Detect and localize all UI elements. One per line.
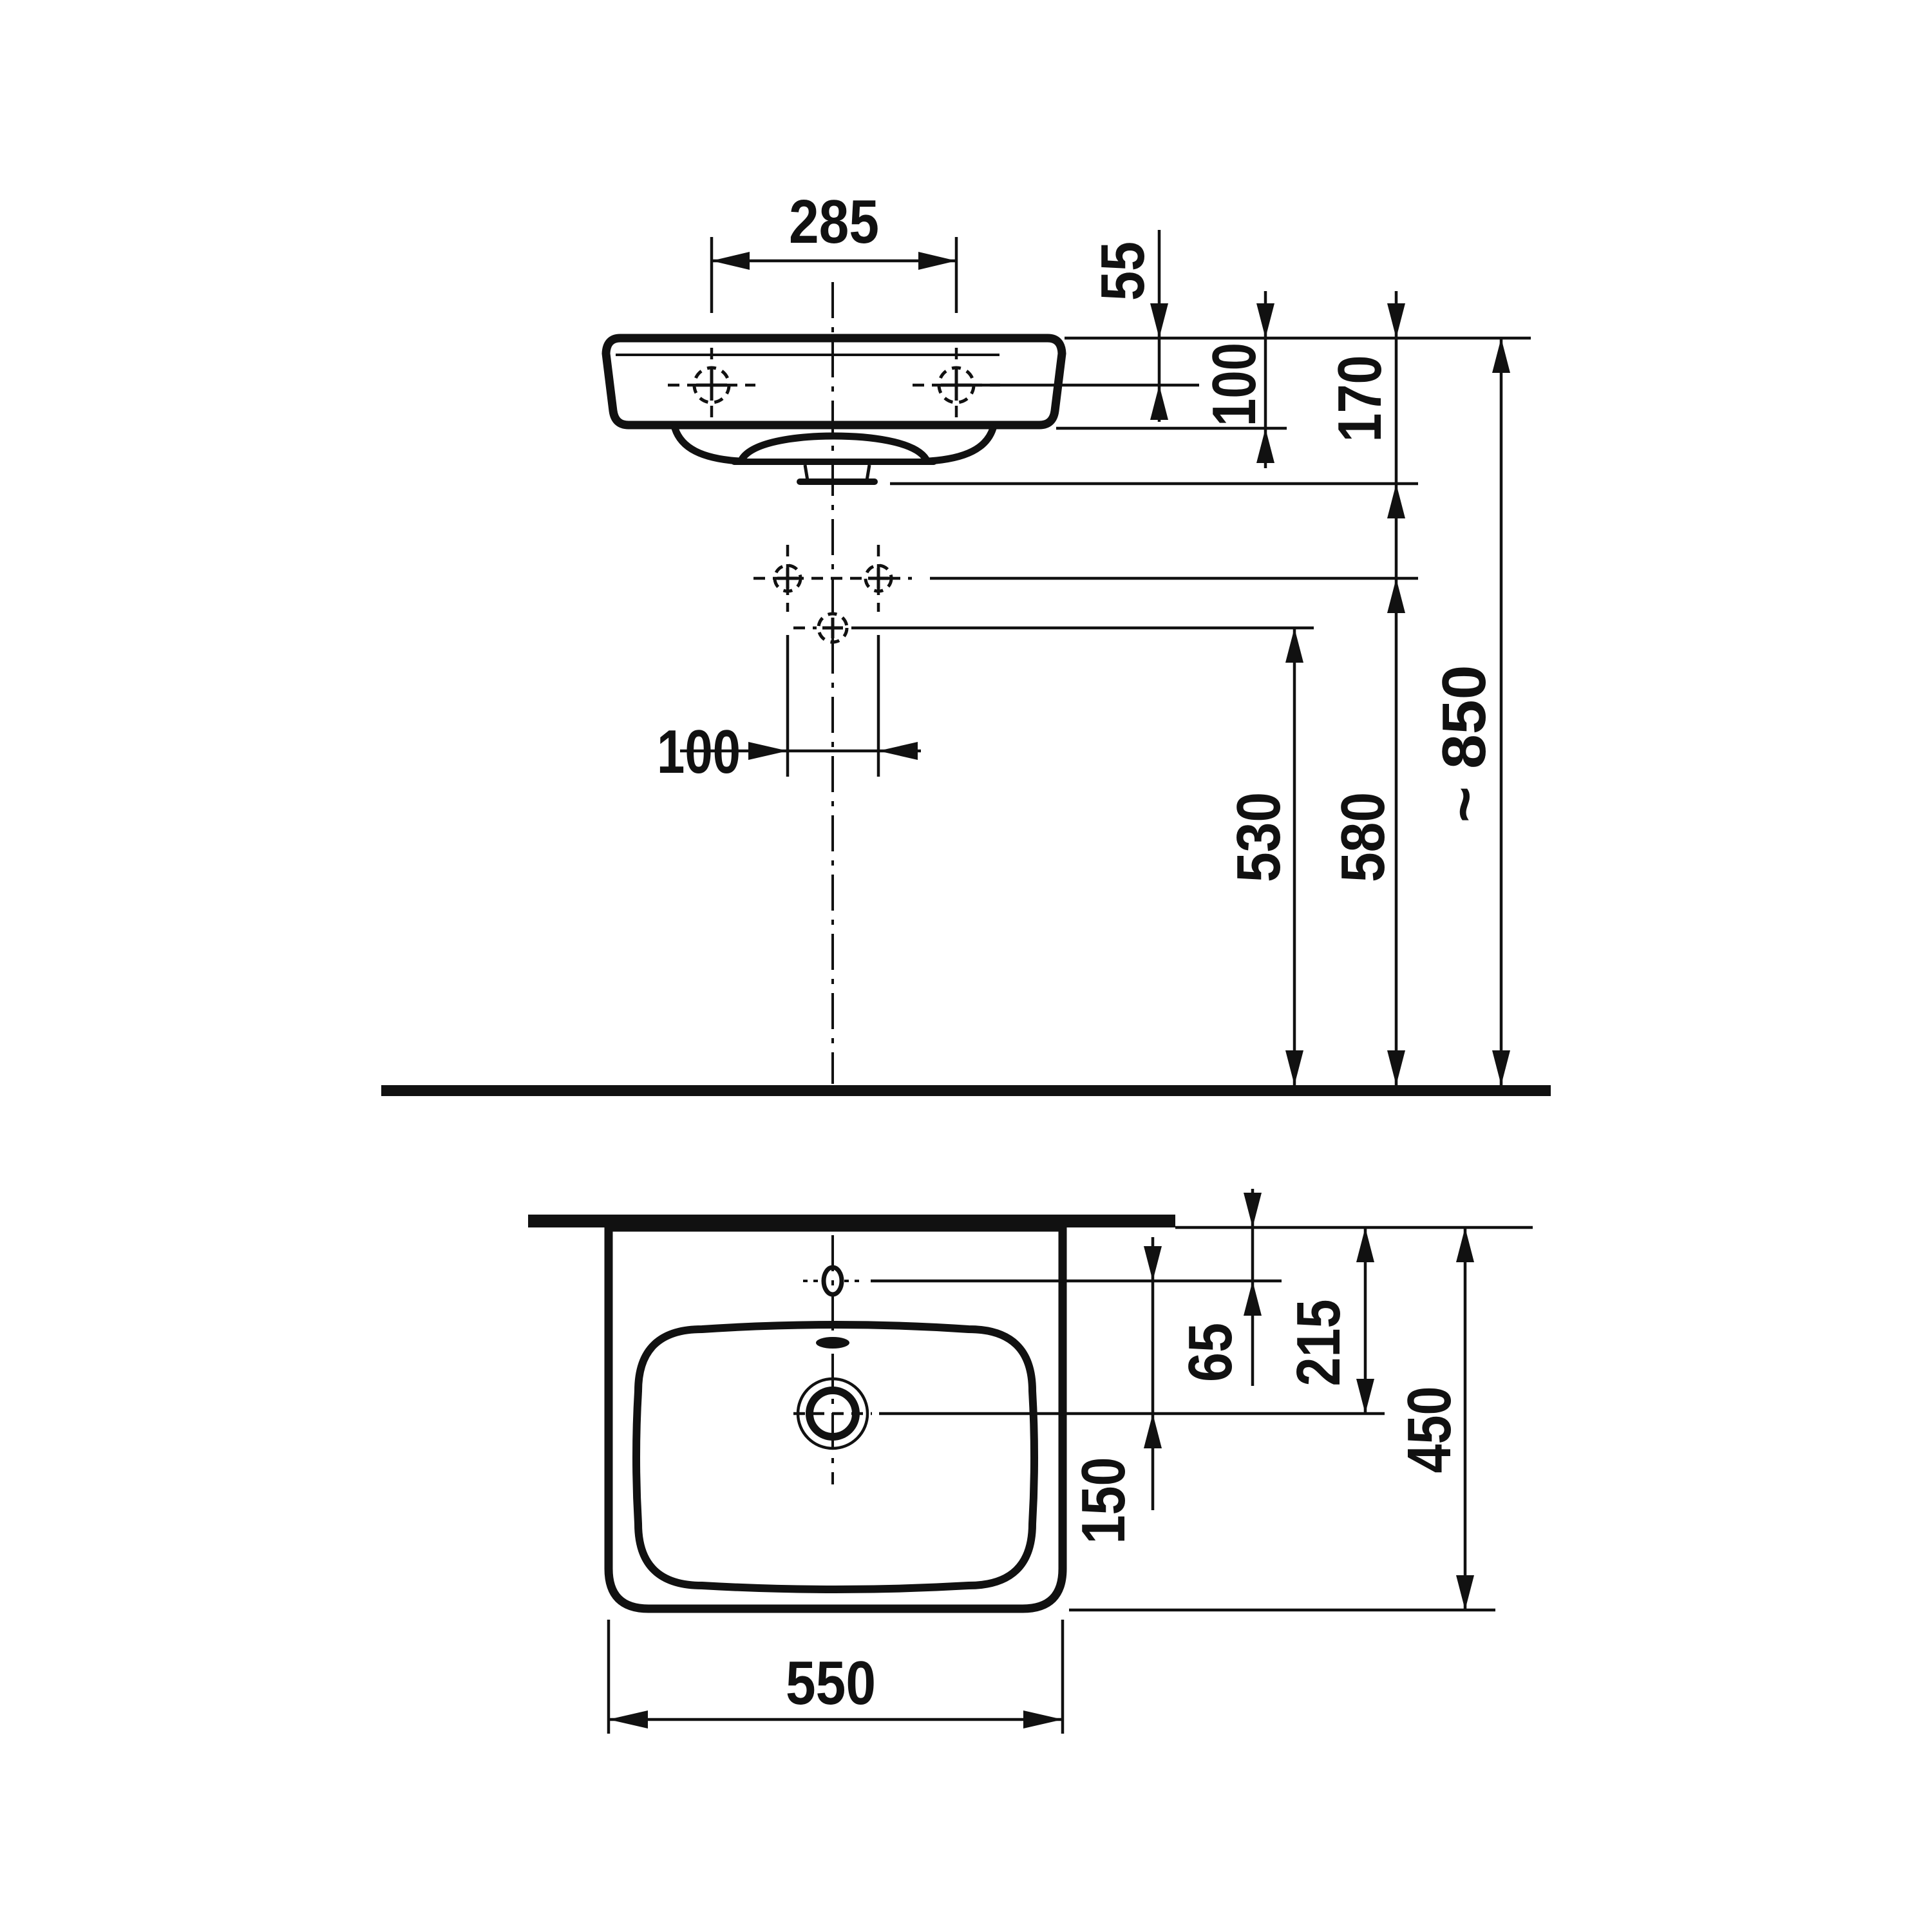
dim-label-530: 530: [1224, 792, 1293, 882]
arrowhead: [1256, 428, 1274, 463]
dimension-rim-to-underside-and-supply-height: 170 580: [1325, 291, 1405, 1085]
arrowhead: [1244, 1281, 1262, 1316]
underside-left-curve: [675, 428, 739, 461]
dimension-rim-to-bottom: 100: [1200, 291, 1274, 468]
dimension-depth: 450: [1395, 1227, 1474, 1610]
arrowhead: [1150, 303, 1168, 338]
arrowhead: [1150, 385, 1168, 420]
dim-label-55: 55: [1088, 241, 1157, 301]
dim-label-100-supply: 100: [657, 717, 741, 786]
dim-label-150: 150: [1069, 1457, 1138, 1544]
arrowhead: [1244, 1193, 1262, 1227]
arrowhead: [1387, 303, 1405, 338]
dim-label-170: 170: [1325, 355, 1394, 442]
drain-tailpipe: [805, 465, 869, 480]
dim-label-65: 65: [1176, 1323, 1245, 1382]
dim-label-580: 580: [1329, 792, 1397, 882]
arrowhead: [609, 1710, 648, 1728]
dimension-rim-to-holes: 55: [1088, 230, 1168, 422]
arrowhead: [1456, 1227, 1474, 1262]
supply-holes: [753, 545, 1418, 612]
dimension-floor-to-rim: ~ 850: [1430, 338, 1510, 1085]
arrowhead: [1256, 303, 1274, 338]
dimension-tap-to-drain: 150: [1069, 1237, 1162, 1544]
arrowhead: [1285, 628, 1303, 663]
arrowhead: [1144, 1414, 1162, 1448]
arrowhead: [712, 252, 750, 270]
front-view: 285 55 100 170 580: [381, 187, 1551, 1096]
dim-label-450: 450: [1395, 1387, 1464, 1473]
dim-label-850: ~ 850: [1430, 665, 1499, 823]
arrowhead: [1456, 1575, 1474, 1610]
dim-label-550: 550: [786, 1649, 876, 1718]
dim-label-215: 215: [1284, 1300, 1353, 1387]
arrowhead: [1356, 1227, 1374, 1262]
floor-line: [381, 1085, 1551, 1096]
dimension-supply-spacing: 100: [657, 635, 921, 786]
arrowhead: [878, 742, 918, 760]
dim-label-285: 285: [789, 187, 879, 256]
dimension-wall-to-drain: 215: [1284, 1227, 1374, 1414]
arrowhead: [1144, 1246, 1162, 1281]
arrowhead: [1492, 338, 1510, 373]
dimension-width: 550: [609, 1620, 1063, 1734]
arrowhead: [1387, 578, 1405, 613]
arrowhead: [1387, 1050, 1405, 1085]
arrowhead: [748, 742, 788, 760]
dim-label-100: 100: [1200, 343, 1269, 426]
arrowhead: [1023, 1710, 1063, 1728]
plan-view: 65 150 215 450: [528, 1189, 1533, 1734]
dimension-wall-to-tap: 65: [1176, 1189, 1262, 1386]
arrowhead: [918, 252, 956, 270]
arrowhead: [1492, 1050, 1510, 1085]
arrowhead: [1285, 1050, 1303, 1085]
drain-hole-wall: [793, 614, 1314, 642]
technical-drawing-canvas: 285 55 100 170 580: [0, 0, 1932, 1932]
arrowhead: [1356, 1379, 1374, 1414]
arrowhead: [1387, 484, 1405, 518]
bowl-outline: [636, 1325, 1034, 1589]
dimension-floor-to-drain: 530: [1224, 628, 1303, 1085]
underside-right-curve: [929, 428, 993, 461]
